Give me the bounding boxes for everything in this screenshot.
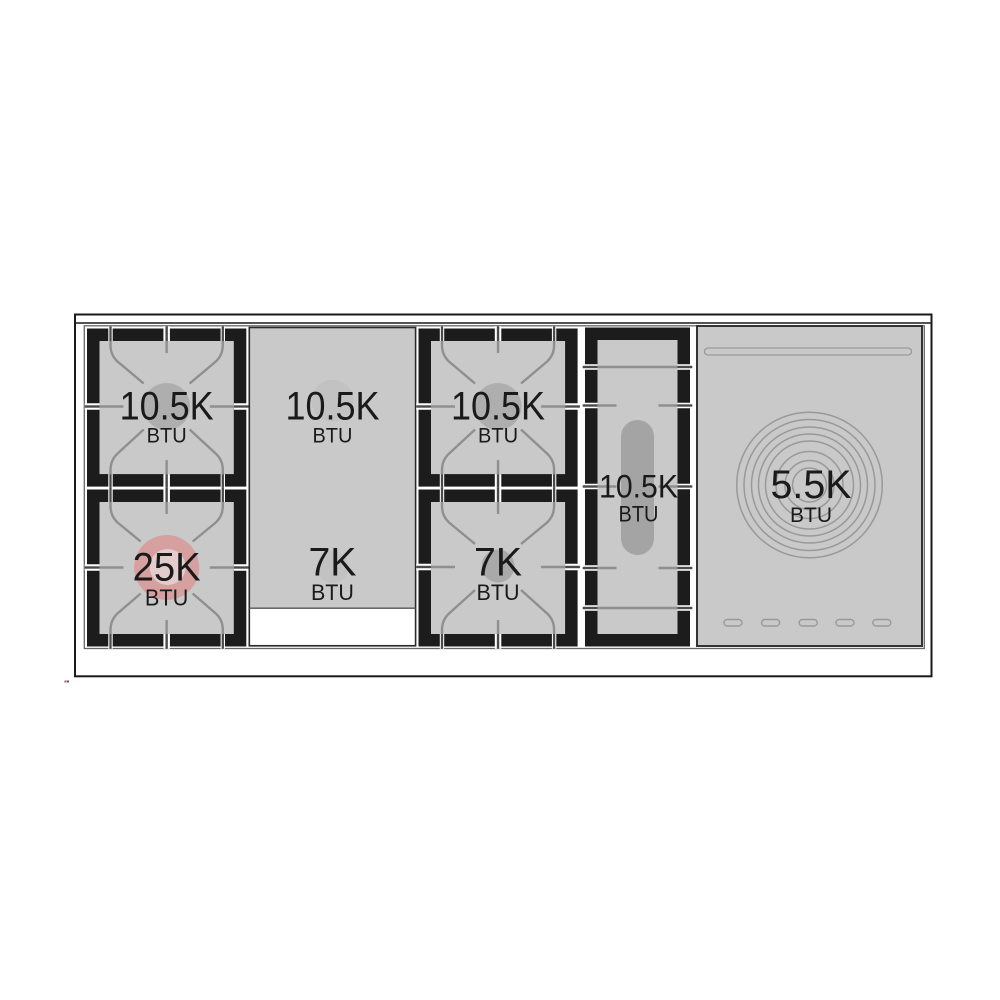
- svg-text:10.5K: 10.5K: [451, 385, 545, 429]
- svg-text:7K: 7K: [474, 541, 522, 585]
- svg-text:BTU: BTU: [312, 424, 352, 447]
- svg-text:BTU: BTU: [790, 503, 832, 527]
- svg-text:5.5K: 5.5K: [771, 463, 852, 507]
- svg-text:10.5K: 10.5K: [120, 385, 214, 429]
- svg-text:BTU: BTU: [145, 585, 189, 611]
- svg-text:BTU: BTU: [477, 580, 520, 605]
- svg-text:BTU: BTU: [147, 424, 187, 447]
- svg-text:BTU: BTU: [619, 502, 659, 527]
- svg-text:10.5K: 10.5K: [285, 385, 379, 429]
- svg-text:BTU: BTU: [478, 424, 518, 447]
- svg-text:25K: 25K: [133, 546, 201, 590]
- svg-text:7K: 7K: [308, 541, 356, 585]
- svg-text:10.5K: 10.5K: [599, 469, 678, 505]
- svg-text:BTU: BTU: [311, 580, 354, 605]
